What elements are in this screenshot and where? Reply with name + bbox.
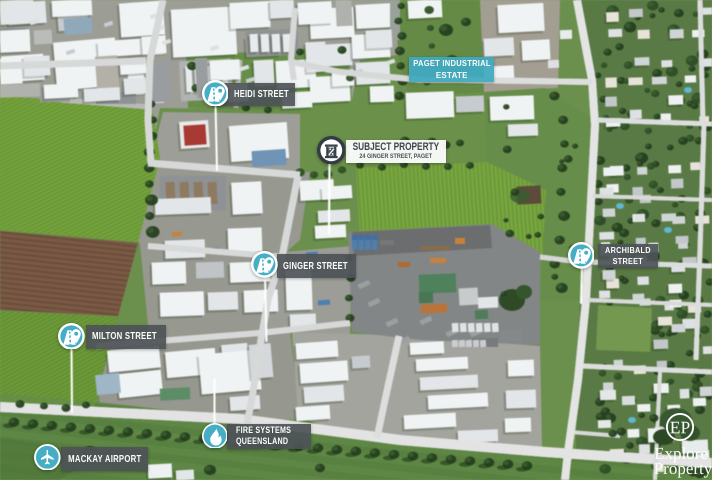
svg-text:EP: EP <box>669 417 690 437</box>
